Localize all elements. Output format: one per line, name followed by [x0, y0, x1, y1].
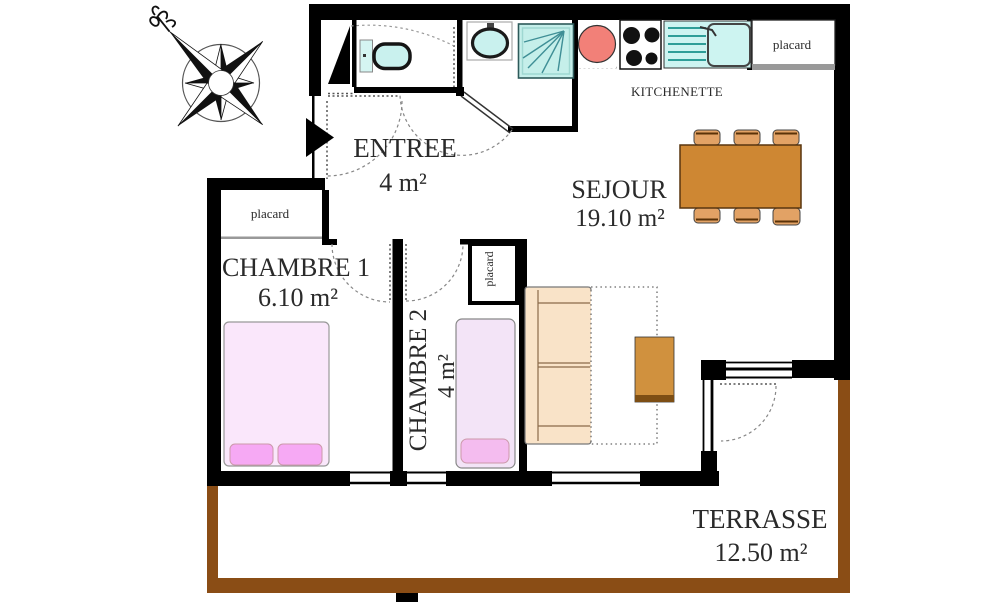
svg-text:4 m²: 4 m² — [434, 354, 460, 398]
svg-text:CHAMBRE 2: CHAMBRE 2 — [405, 309, 432, 451]
svg-text:TERRASSE: TERRASSE — [692, 504, 827, 534]
svg-text:placard: placard — [482, 251, 496, 286]
svg-text:placard: placard — [773, 37, 812, 52]
svg-text:CHAMBRE 1: CHAMBRE 1 — [222, 253, 370, 282]
svg-text:ENTREE: ENTREE — [353, 133, 456, 163]
svg-text:19.10 m²: 19.10 m² — [575, 205, 664, 232]
svg-text:SEJOUR: SEJOUR — [571, 175, 667, 204]
svg-text:12.50 m²: 12.50 m² — [714, 538, 807, 567]
svg-text:6.10 m²: 6.10 m² — [258, 283, 338, 312]
svg-text:4 m²: 4 m² — [379, 168, 427, 197]
svg-text:KITCHENETTE: KITCHENETTE — [631, 84, 723, 99]
svg-text:placard: placard — [251, 206, 290, 221]
